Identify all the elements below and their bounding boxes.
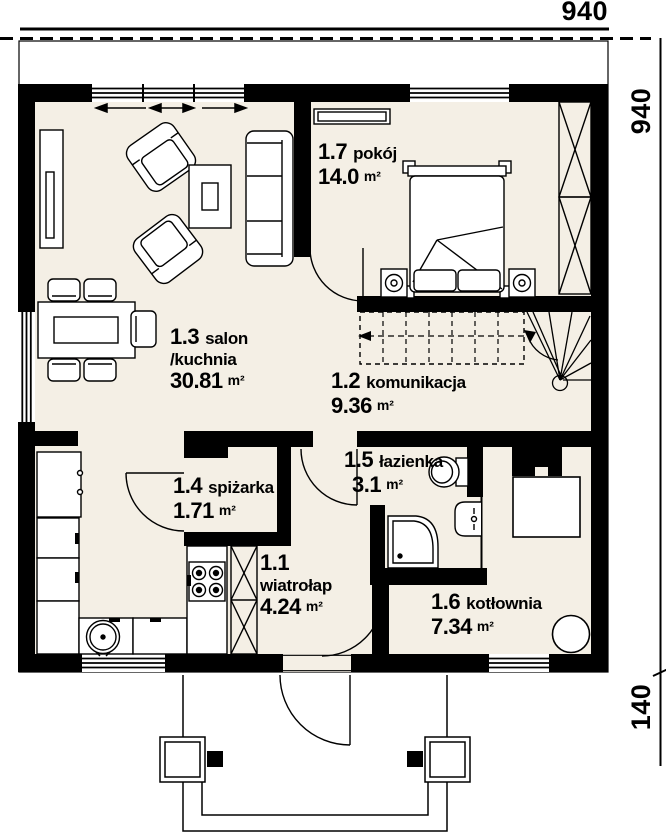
- room-label-komunikacja: 1.2komunikacja 9.36m²: [331, 369, 466, 418]
- kitchen-cabinet: [37, 558, 79, 601]
- floor-plan-canvas: 940 940 140 1.7pokój 14.0m² 1.3salon /ku…: [0, 0, 666, 835]
- room-number: 1.7: [318, 139, 347, 164]
- tv-cabinet: [40, 130, 63, 248]
- dimension-label-porch: 140: [626, 676, 660, 738]
- wall-right: [591, 84, 608, 672]
- room-name: łazienka: [379, 452, 443, 471]
- wall-under-pokoj: [357, 296, 591, 312]
- sofa: [246, 131, 293, 266]
- wall-shelf: [314, 109, 390, 124]
- room-name2: wiatrołap: [260, 576, 332, 595]
- fridge: [37, 452, 83, 517]
- coffee-table: [189, 165, 231, 228]
- room-number: 1.4: [173, 473, 202, 498]
- room-name: pokój: [353, 144, 397, 163]
- room-number: 1.5: [344, 447, 373, 472]
- room-area: 1.71: [173, 498, 214, 523]
- wall-spizarka-bottom: [184, 532, 291, 546]
- room-number: 1.1: [260, 550, 289, 575]
- boiler: [513, 477, 580, 537]
- porch-pier: [407, 751, 423, 767]
- wall-lazienka-bottom: [370, 568, 487, 585]
- nightstand: [509, 269, 535, 297]
- dining-chair: [48, 359, 80, 381]
- window-kotlownia-bottom: [489, 654, 549, 672]
- window-salon-left: [18, 312, 35, 422]
- wall-lazienka-right: [467, 447, 483, 497]
- porch: [160, 675, 470, 831]
- room-area-unit: m²: [219, 502, 236, 518]
- room-area: 30.81: [170, 368, 223, 393]
- room-area: 3.1: [352, 472, 381, 497]
- room-area-unit: m²: [306, 598, 323, 614]
- pillow: [414, 270, 456, 291]
- window-kitchen-bottom: [82, 654, 165, 672]
- dining-chair: [84, 359, 116, 381]
- kitchen-cabinet: [37, 601, 79, 654]
- water-heater: [553, 616, 590, 653]
- wall-salon-pokoj: [294, 102, 311, 257]
- room-number: 1.3: [170, 324, 199, 349]
- dining-chair: [131, 311, 156, 347]
- porch-column: [425, 737, 470, 782]
- washbasin: [455, 502, 481, 536]
- dining-table: [38, 302, 135, 358]
- tv: [46, 172, 54, 238]
- kitchen-counter: [133, 618, 187, 654]
- room-name: spiżarka: [208, 478, 274, 497]
- room-area-unit: m²: [364, 168, 381, 184]
- porch-inner-outline: [202, 780, 428, 815]
- porch-pier: [207, 751, 223, 767]
- nightstand: [381, 269, 407, 297]
- room-label-salon-kuchnia: 1.3salon /kuchnia 30.81m²: [170, 325, 248, 393]
- room-name: komunikacja: [366, 373, 466, 392]
- room-area-unit: m²: [386, 476, 403, 492]
- porch-column: [160, 737, 205, 782]
- room-name: kotłownia: [466, 594, 542, 613]
- room-area: 4.24: [260, 594, 301, 619]
- room-name: salon: [205, 329, 248, 348]
- room-number: 1.6: [431, 589, 460, 614]
- shower: [388, 516, 438, 568]
- bed-headrail: [408, 166, 506, 176]
- room-name2: /kuchnia: [170, 350, 248, 369]
- window-salon-top: [92, 84, 244, 102]
- pillow: [458, 270, 500, 291]
- dimension-label-top: 940: [498, 0, 608, 27]
- room-label-pokoj: 1.7pokój 14.0m²: [318, 140, 397, 189]
- cooktop-counter: [187, 546, 227, 654]
- room-area: 7.34: [431, 614, 472, 639]
- room-label-wiatrolap: 1.1 wiatrołap 4.24m²: [260, 551, 332, 619]
- wall-spizarka-right: [277, 431, 291, 546]
- room-number: 1.2: [331, 368, 360, 393]
- room-area-unit: m²: [477, 618, 494, 634]
- kitchen-cabinet: [37, 518, 79, 558]
- door-entrance: [280, 675, 350, 745]
- chimney-notch: [535, 467, 548, 477]
- room-area: 14.0: [318, 164, 359, 189]
- room-area-unit: m²: [228, 372, 245, 388]
- room-area-unit: m²: [377, 397, 394, 413]
- dining-chair: [48, 279, 80, 301]
- chimney-spizarka: [184, 431, 228, 458]
- room-label-kotlownia: 1.6kotłownia 7.34m²: [431, 590, 542, 639]
- wall-stub-left: [35, 431, 78, 446]
- dining-chair: [84, 279, 116, 301]
- dimension-label-right: 940: [626, 80, 660, 142]
- room-label-spizarka: 1.4spiżarka 1.71m²: [173, 474, 274, 523]
- front-door-opening: [283, 654, 351, 672]
- room-label-lazienka: 1.5łazienka 3.1m²: [344, 448, 443, 497]
- wall-lazienka-top: [357, 431, 591, 447]
- window-pokoj-top: [410, 84, 509, 102]
- wall-wiatrolap-kotlownia: [372, 585, 389, 655]
- room-area: 9.36: [331, 393, 372, 418]
- bed: [402, 161, 512, 298]
